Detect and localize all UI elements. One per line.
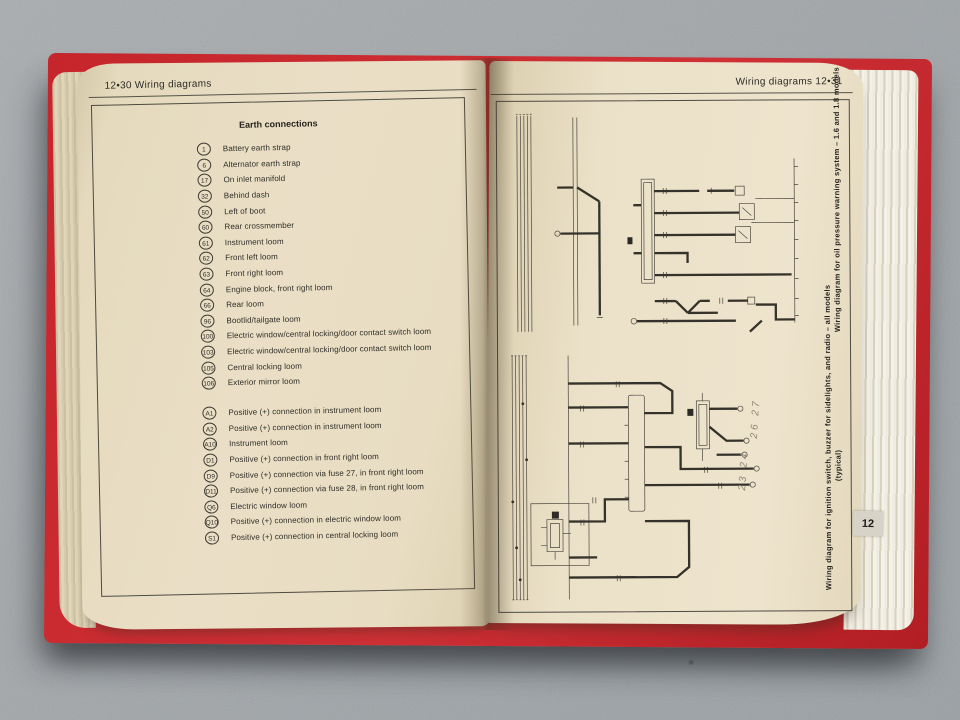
item-number-circle: 100 [201, 330, 215, 343]
item-code-circle: Q10 [205, 516, 219, 529]
wiring-diagrams-box: Wiring diagram for oil pressure warning … [496, 99, 853, 613]
item-label: Front right loom [225, 268, 283, 278]
ignition-buzzer-radio-wiring-diagram [504, 350, 805, 604]
item-number-circle: 62 [199, 252, 213, 265]
item-label: Behind dash [224, 190, 270, 200]
left-page-header: 12•30 Wiring diagrams [104, 78, 211, 91]
oil-pressure-wiring-diagram [503, 108, 804, 336]
item-label: Front left loom [225, 253, 278, 263]
item-label: Electric window/central locking/door con… [227, 327, 432, 340]
item-label: Left of boot [224, 206, 265, 216]
item-label: Positive (+) connection via fuse 28, in … [230, 482, 424, 495]
item-number-circle: 60 [198, 221, 212, 234]
earth-connections-list: 1 Battery earth strap 6 Alternator earth… [197, 136, 462, 391]
item-label: Electric window loom [230, 500, 307, 511]
left-page: 12•30 Wiring diagrams Earth connections … [78, 60, 491, 630]
item-number-circle: 103 [201, 345, 215, 358]
left-page-content: 12•30 Wiring diagrams Earth connections … [74, 58, 494, 632]
item-label: Battery earth strap [223, 143, 291, 153]
item-label: Engine block, front right loom [226, 283, 333, 294]
item-number-circle: 63 [199, 268, 213, 281]
item-label: Central locking loom [227, 361, 302, 372]
item-number-circle: 96 [200, 314, 214, 327]
item-number-circle: 50 [198, 205, 212, 218]
item-number-circle: 105 [201, 361, 215, 374]
item-label: Rear loom [226, 300, 264, 310]
item-number-circle: 1 [197, 143, 211, 156]
item-number-circle: 106 [202, 377, 216, 390]
right-page-content: Wiring diagrams 12•31 [487, 61, 864, 625]
earth-connections-title: Earth connections [92, 115, 464, 133]
item-code-circle: D9 [204, 469, 218, 482]
item-code-circle: S1 [205, 531, 219, 544]
right-page: Wiring diagrams 12•31 [487, 61, 864, 625]
item-label: Instrument loom [229, 438, 288, 448]
item-label: Exterior mirror loom [228, 377, 300, 388]
item-label: Rear crossmember [224, 221, 294, 231]
item-code-circle: Q6 [204, 500, 218, 513]
item-number-circle: 64 [200, 283, 214, 296]
bottom-diagram-caption-note: (typical) [833, 340, 843, 590]
item-number-circle: 17 [197, 174, 211, 187]
item-label: On inlet manifold [223, 174, 285, 184]
bottom-diagram-caption: Wiring diagram for ignition switch, buzz… [823, 340, 833, 590]
right-page-header: Wiring diagrams 12•31 [736, 76, 843, 88]
item-label: Positive (+) connection in electric wind… [231, 514, 401, 527]
item-code-circle: A10 [203, 438, 217, 451]
item-number-circle: 61 [199, 236, 213, 249]
item-code-circle: D1 [203, 453, 217, 466]
item-label: Alternator earth strap [223, 159, 301, 170]
item-label: Positive (+) connection via fuse 27, in … [230, 467, 424, 480]
right-header-rule [491, 92, 853, 95]
item-label: Instrument loom [225, 237, 284, 247]
item-number-circle: 66 [200, 299, 214, 312]
item-number-circle: 32 [198, 190, 212, 203]
earth-connections-box: Earth connections 1 Battery earth strap … [91, 97, 475, 597]
item-label: Positive (+) connection in front right l… [229, 452, 379, 464]
section-tab: 12 [853, 511, 884, 537]
item-label: Positive (+) connection in instrument lo… [228, 405, 381, 417]
item-label: Electric window/central locking/door con… [227, 343, 432, 356]
item-code-circle: A2 [203, 422, 217, 435]
item-number-circle: 6 [197, 158, 211, 171]
item-code-circle: A1 [202, 407, 216, 420]
item-label: Positive (+) connection in instrument lo… [229, 421, 382, 433]
positive-connections-list: A1 Positive (+) connection in instrument… [202, 400, 465, 546]
item-code-circle: D11 [204, 485, 218, 498]
top-diagram-caption: Wiring diagram for oil pressure warning … [832, 124, 842, 332]
item-label: Bootlid/tailgate loom [226, 314, 300, 325]
item-label: Positive (+) connection in central locki… [231, 530, 398, 543]
